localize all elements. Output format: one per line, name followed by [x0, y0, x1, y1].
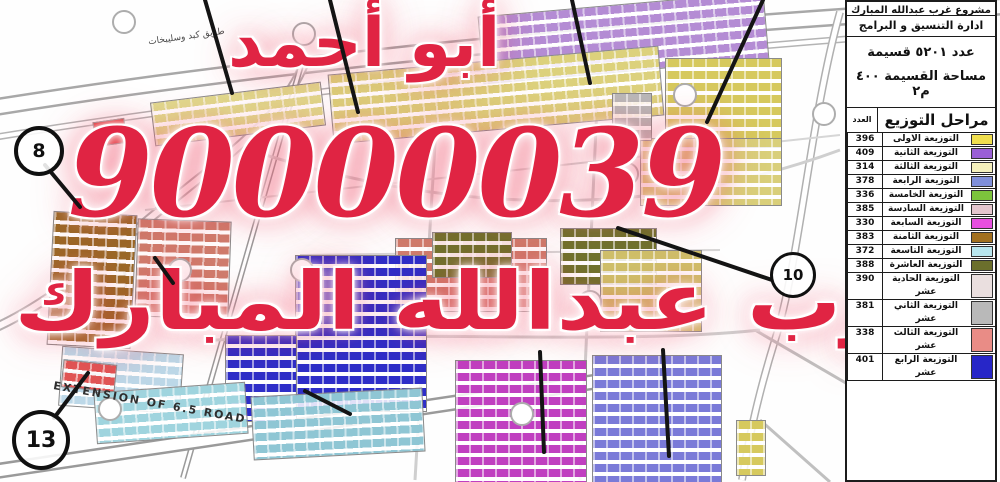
- legend-phase-label: التوزيعة الرابع عشر: [883, 354, 969, 380]
- legend-row-4: التوزيعة الرابعة378: [847, 175, 995, 189]
- callout-circle-13: 13: [12, 410, 70, 470]
- legend-color-swatch: [971, 190, 993, 201]
- legend-row-5: التوزيعة الخامسة336: [847, 189, 995, 203]
- legend-phase-count: 385: [847, 203, 883, 216]
- legend-row-11: التوزيعة الحادية عشر390: [847, 273, 995, 300]
- legend-color-swatch: [971, 301, 993, 325]
- scanned-district-map: طريق كبد وسليبخات EXTENSION OF 6.5 ROAD …: [0, 0, 1000, 482]
- legend-color-swatch: [971, 355, 993, 379]
- legend-phase-count: 383: [847, 231, 883, 244]
- legend-phase-label: التوزيعة التاسعة: [883, 245, 969, 258]
- legend-color-swatch: [971, 260, 993, 271]
- panel-project-title: مشروع غرب عبدالله المبارك: [847, 2, 995, 16]
- legend-phase-label: التوزيعة الثالث عشر: [883, 327, 969, 353]
- panel-department: ادارة التنسيق و البرامج: [847, 16, 995, 37]
- legend-color-swatch: [971, 218, 993, 229]
- legend-row-13: التوزيعة الثالث عشر338: [847, 327, 995, 354]
- legend-phase-label: التوزيعة الحادية عشر: [883, 273, 969, 299]
- legend-phase-label: التوزيعة العاشرة: [883, 259, 969, 272]
- legend-color-swatch: [971, 148, 993, 159]
- legend-phase-count: 330: [847, 217, 883, 230]
- legend-header: مراحل التوزيع العدد: [847, 108, 995, 133]
- legend-phase-label: التوزيعة السادسة: [883, 203, 969, 216]
- legend-phase-count: 388: [847, 259, 883, 272]
- legend-phase-label: التوزيعة الاولى: [883, 133, 969, 146]
- legend-panel: مشروع غرب عبدالله المبارك ادارة التنسيق …: [845, 0, 997, 482]
- legend-row-9: التوزيعة التاسعة372: [847, 245, 995, 259]
- legend-phase-label: التوزيعة الثامنة: [883, 231, 969, 244]
- legend-color-swatch: [971, 246, 993, 257]
- legend-color-swatch: [971, 232, 993, 243]
- legend-phase-count: 314: [847, 161, 883, 174]
- legend-phase-label: التوزيعة السابعة: [883, 217, 969, 230]
- legend-phase-count: 409: [847, 147, 883, 160]
- legend-color-swatch: [971, 176, 993, 187]
- legend-title: مراحل التوزيع: [878, 108, 995, 132]
- legend-phase-count: 336: [847, 189, 883, 202]
- legend-row-8: التوزيعة الثامنة383: [847, 231, 995, 245]
- legend-phase-label: التوزيعة الثالثة: [883, 161, 969, 174]
- legend-row-3: التوزيعة الثالثة314: [847, 161, 995, 175]
- legend-phase-count: 401: [847, 354, 883, 380]
- legend-row-14: التوزيعة الرابع عشر401: [847, 354, 995, 381]
- legend-color-swatch: [971, 204, 993, 215]
- legend-phase-count: 378: [847, 175, 883, 188]
- legend-rows: التوزيعة الاولى396التوزيعة الثانية409الت…: [847, 133, 995, 331]
- legend-phase-label: التوزيعة الثاني عشر: [883, 300, 969, 326]
- legend-phase-count: 396: [847, 133, 883, 146]
- legend-color-swatch: [971, 328, 993, 352]
- legend-phase-count: 381: [847, 300, 883, 326]
- legend-row-12: التوزيعة الثاني عشر381: [847, 300, 995, 327]
- legend-row-2: التوزيعة الثانية409: [847, 147, 995, 161]
- panel-plot-count: عدد ٥٢٠١ قسيمة: [847, 45, 995, 60]
- legend-row-6: التوزيعة السادسة385: [847, 203, 995, 217]
- legend-row-10: التوزيعة العاشرة388: [847, 259, 995, 273]
- legend-color-swatch: [971, 162, 993, 173]
- callout-circle-10: 10: [770, 252, 816, 298]
- legend-phase-label: التوزيعة الثانية: [883, 147, 969, 160]
- legend-phase-label: التوزيعة الرابعة: [883, 175, 969, 188]
- legend-phase-count: 390: [847, 273, 883, 299]
- legend-row-1: التوزيعة الاولى396: [847, 133, 995, 147]
- legend-color-swatch: [971, 134, 993, 145]
- panel-plot-area: مساحة القسيمة ٤٠٠ م٢: [847, 69, 995, 99]
- legend-phase-count: 372: [847, 245, 883, 258]
- legend-count-header: العدد: [847, 108, 878, 132]
- legend-row-7: التوزيعة السابعة330: [847, 217, 995, 231]
- legend-color-swatch: [971, 274, 993, 298]
- legend-phase-count: 338: [847, 327, 883, 353]
- panel-stats: عدد ٥٢٠١ قسيمة مساحة القسيمة ٤٠٠ م٢: [847, 37, 995, 108]
- callout-circle-8: 8: [14, 126, 64, 176]
- legend-phase-label: التوزيعة الخامسة: [883, 189, 969, 202]
